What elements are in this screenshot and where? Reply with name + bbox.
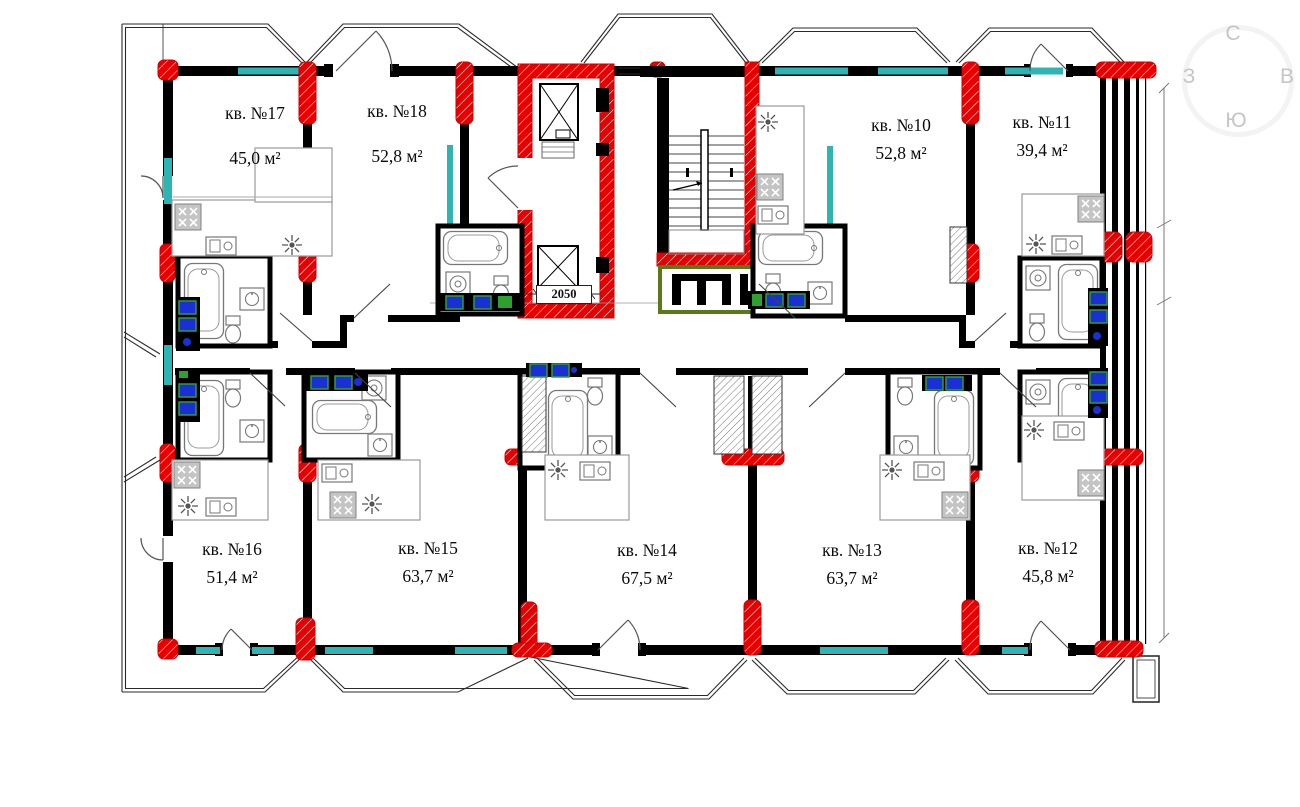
apartment-number: кв. №13	[767, 540, 937, 560]
elevator-car-upper	[540, 84, 578, 140]
apartment-number: кв. №18	[312, 101, 482, 121]
apartment-area: 51,4 м²	[147, 567, 317, 587]
apartment-number: кв. №14	[562, 540, 732, 560]
compass-south: Ю	[1225, 109, 1247, 133]
apartment-label-11: кв. №11 39,4 м²	[957, 112, 1127, 160]
compass-north: С	[1222, 22, 1244, 46]
apartment-area: 52,8 м²	[312, 146, 482, 166]
apartment-label-15: кв. №15 63,7 м²	[343, 538, 513, 586]
entrance-lobby	[660, 267, 756, 312]
apartment-area: 63,7 м²	[767, 568, 937, 588]
apartment-label-14: кв. №14 67,5 м²	[562, 540, 732, 588]
compass-west: З	[1178, 65, 1200, 89]
apartment-area: 39,4 м²	[957, 140, 1127, 160]
apartment-area: 63,7 м²	[343, 566, 513, 586]
apartment-label-18: кв. №18 52,8 м²	[312, 101, 482, 166]
apartment-label-16: кв. №16 51,4 м²	[147, 539, 317, 587]
apartment-number: кв. №12	[963, 538, 1133, 558]
apartment-number: кв. №16	[147, 539, 317, 559]
apartment-area: 45,8 м²	[963, 566, 1133, 586]
floor-plan: кв. №17 45,0 м² кв. №18 52,8 м² кв. №10 …	[0, 0, 1300, 807]
apartment-number: кв. №15	[343, 538, 513, 558]
apartment-area: 67,5 м²	[562, 568, 732, 588]
staircase	[640, 62, 759, 267]
apartment-label-13: кв. №13 63,7 м²	[767, 540, 937, 588]
apartment-label-12: кв. №12 45,8 м²	[963, 538, 1133, 586]
apartment-number: кв. №11	[957, 112, 1127, 132]
compass-east: В	[1276, 65, 1298, 89]
right-wall	[1100, 78, 1159, 702]
elevator-dimension-label: 2050	[536, 285, 592, 304]
dimension-line	[1157, 83, 1171, 643]
elevator-car-lower	[538, 246, 578, 288]
